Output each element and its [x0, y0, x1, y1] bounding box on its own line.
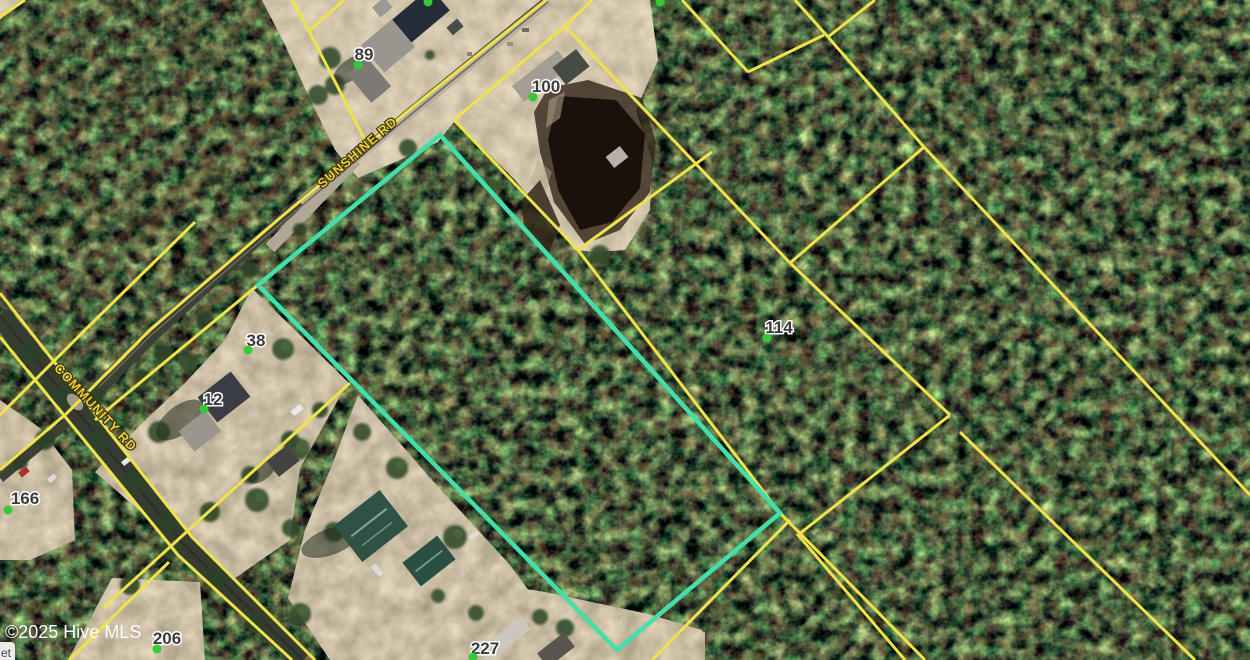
- svg-text:et: et: [1, 646, 12, 660]
- svg-text:©2025 Hive MLS: ©2025 Hive MLS: [5, 622, 141, 642]
- svg-text:100: 100: [532, 77, 560, 96]
- svg-text:166: 166: [11, 489, 39, 508]
- svg-text:114: 114: [765, 318, 793, 337]
